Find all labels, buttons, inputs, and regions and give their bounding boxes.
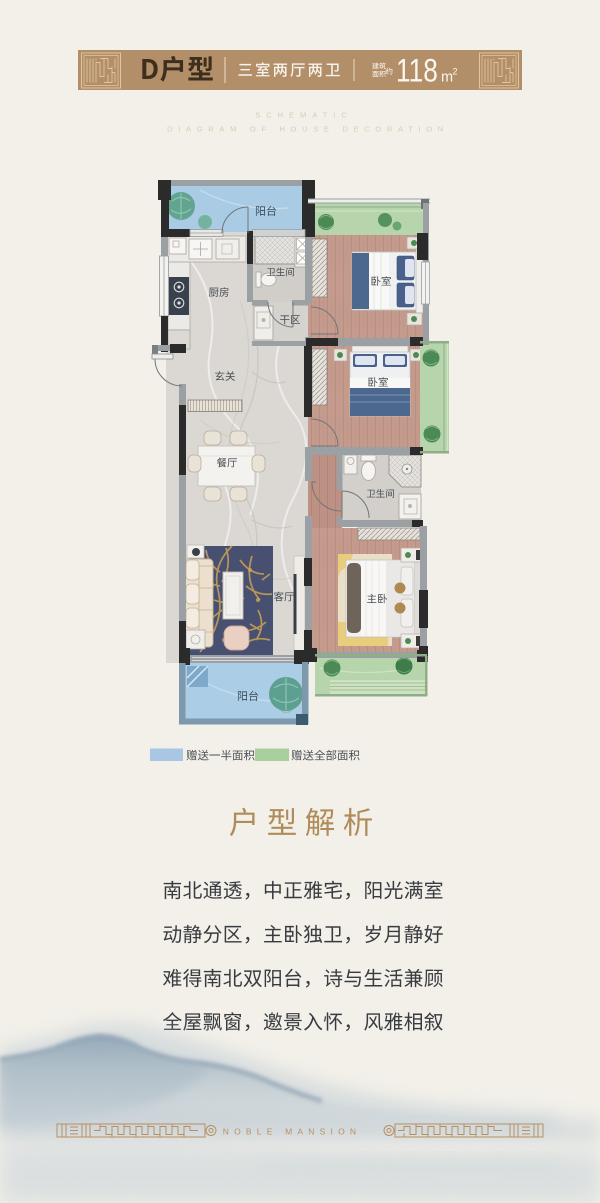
- svg-text:SCHEMATIC: SCHEMATIC: [255, 111, 353, 120]
- svg-text:m: m: [441, 70, 453, 86]
- svg-text:118: 118: [396, 54, 438, 89]
- svg-text:2: 2: [453, 67, 458, 77]
- svg-text:NOBLE MANSION: NOBLE MANSION: [223, 1127, 361, 1137]
- svg-text:DIAGRAM OF HOUSE DECORATION: DIAGRAM OF HOUSE DECORATION: [167, 125, 449, 134]
